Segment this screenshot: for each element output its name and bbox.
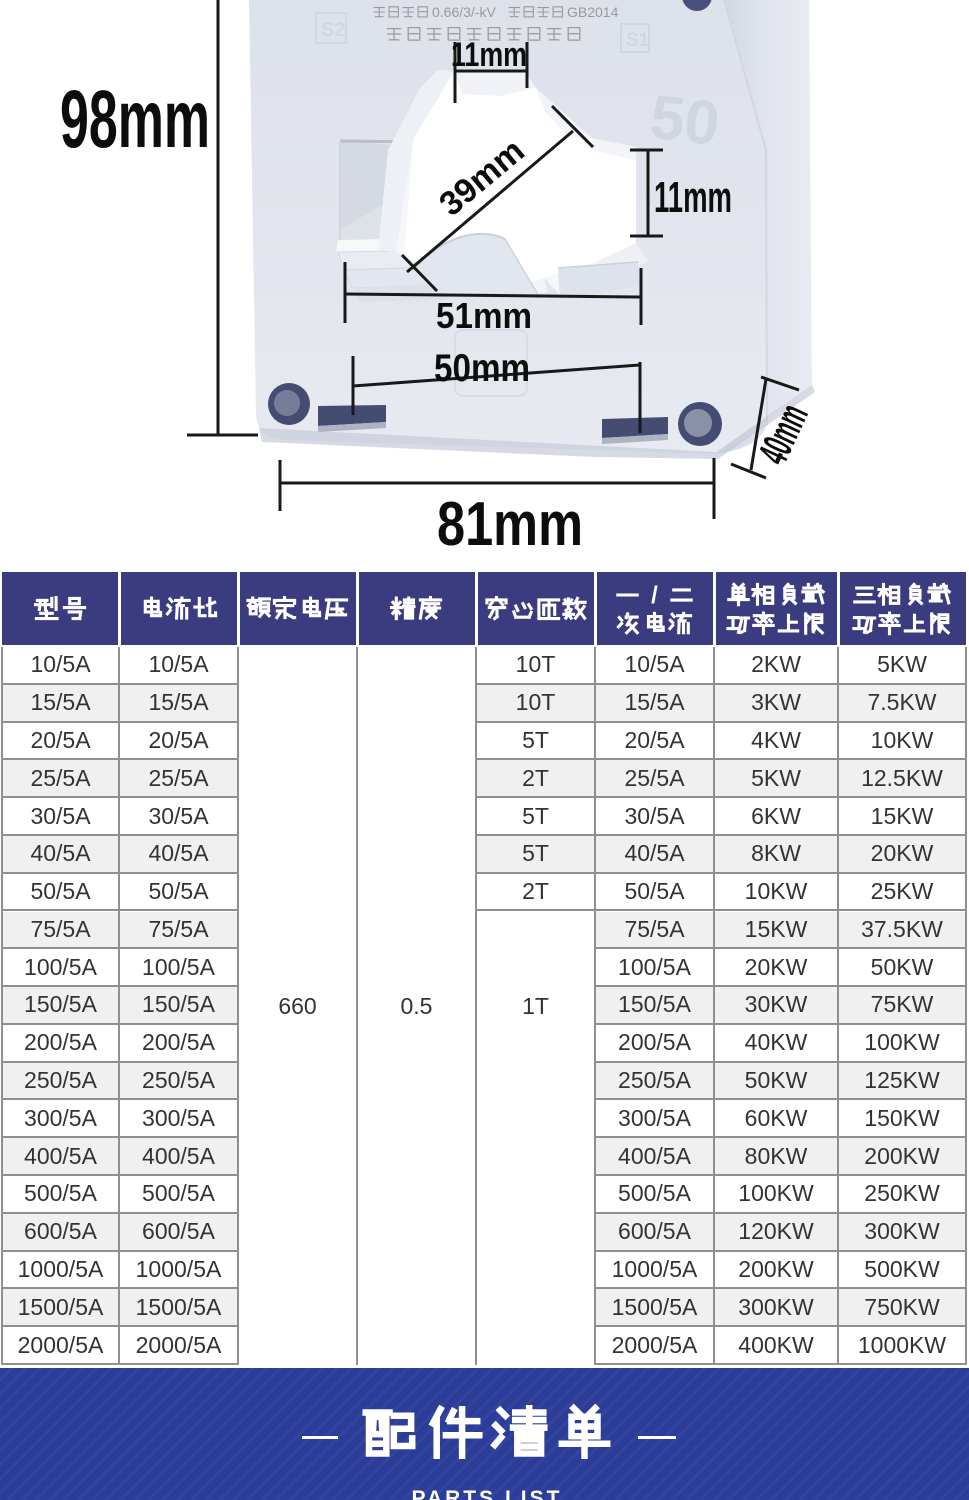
svg-text:51mm: 51mm — [436, 295, 532, 336]
svg-text:50: 50 — [646, 82, 723, 159]
svg-text:98mm: 98mm — [60, 74, 210, 165]
svg-text:11mm: 11mm — [451, 36, 527, 74]
svg-text:11mm: 11mm — [654, 173, 732, 222]
svg-text:0.66/3/-kV: 0.66/3/-kV — [432, 4, 496, 20]
svg-text:PARTS LIST: PARTS LIST — [412, 1487, 563, 1500]
svg-text:GB2014: GB2014 — [567, 4, 619, 20]
svg-text:81mm: 81mm — [437, 490, 583, 559]
svg-text:50mm: 50mm — [434, 347, 530, 390]
svg-text:S2: S2 — [321, 19, 345, 41]
svg-text:S1: S1 — [626, 30, 650, 51]
svg-text:/: / — [651, 582, 658, 609]
